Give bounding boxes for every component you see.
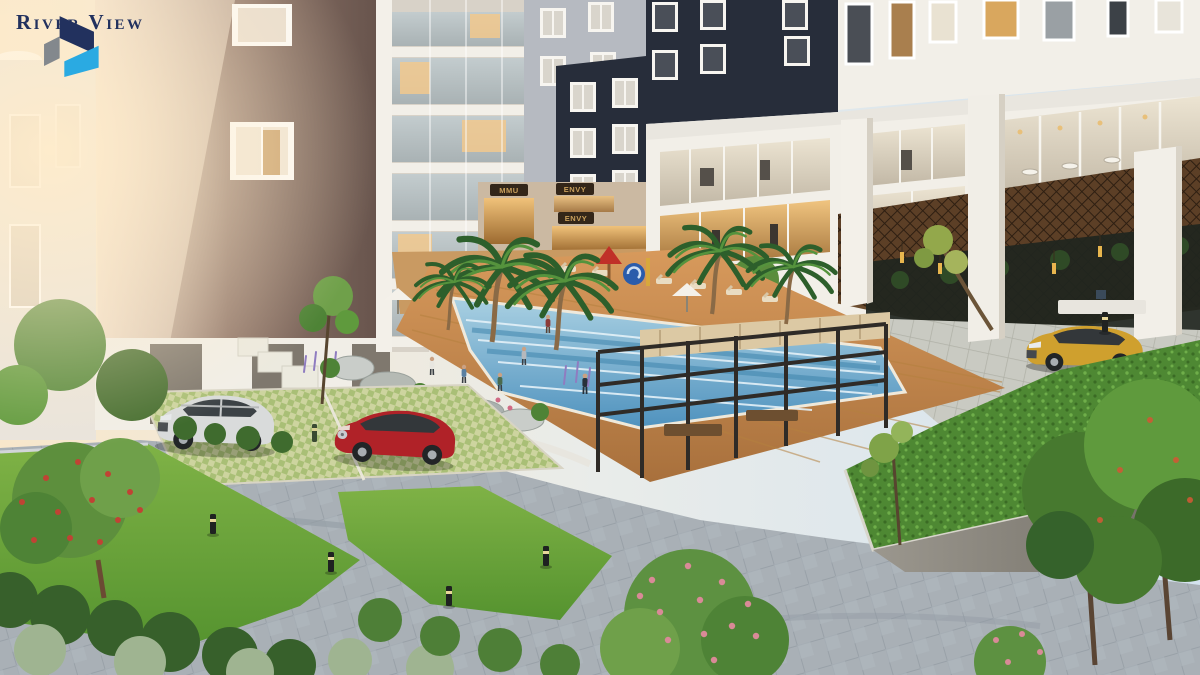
shop-sign-right-upper: ENVY	[556, 183, 594, 195]
riverview-rendering: MMU ENVY ENVY	[0, 0, 1200, 675]
shop-sign-right-lower: ENVY	[558, 212, 594, 224]
svg-text:MMU: MMU	[499, 186, 518, 195]
riverview-logo: River View	[16, 8, 196, 35]
bench	[1058, 300, 1146, 314]
parking-bollard	[312, 424, 317, 442]
shop-sign-left: MMU	[490, 184, 528, 196]
riverview-logo-cube-icon	[30, 8, 108, 96]
svg-text:ENVY: ENVY	[565, 214, 587, 223]
svg-text:ENVY: ENVY	[564, 185, 586, 194]
